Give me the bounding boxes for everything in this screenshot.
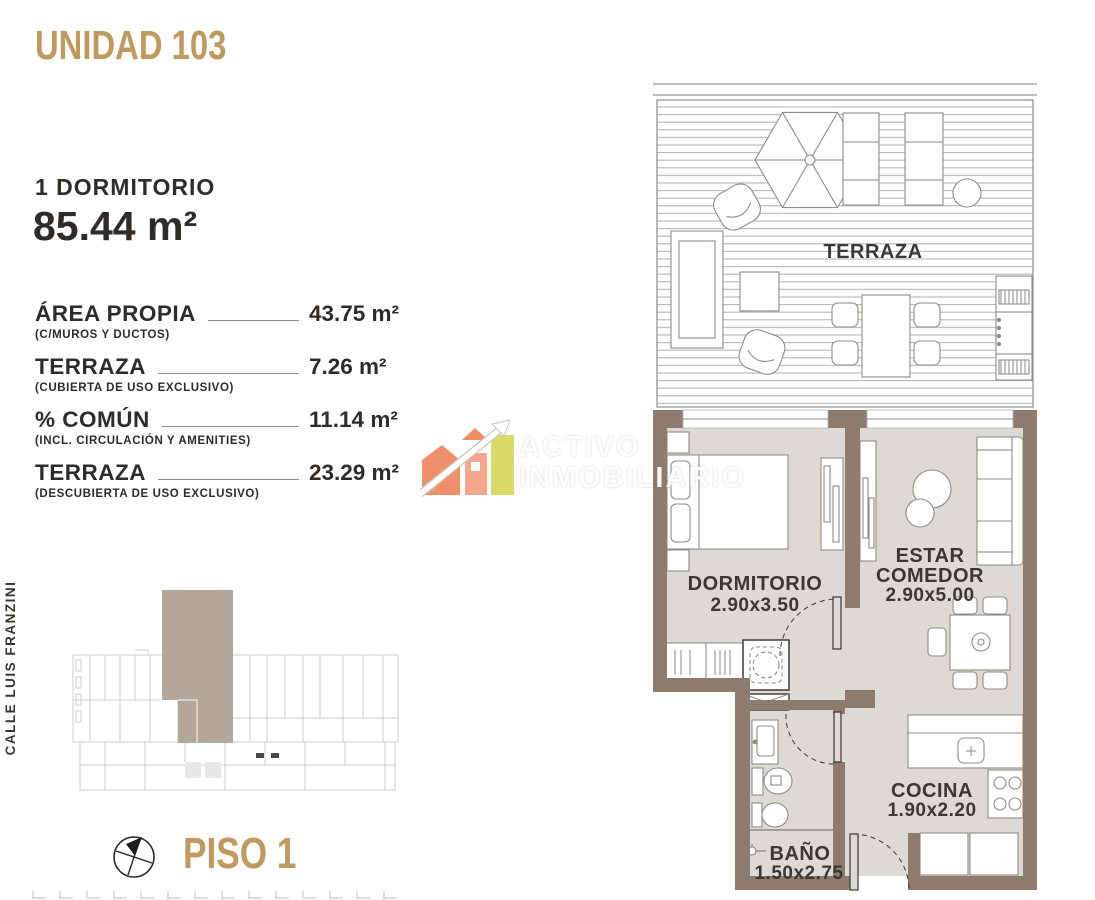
estar-label-2: COMEDOR: [876, 565, 984, 587]
floorplan-drawing: TERRAZA: [640, 75, 1095, 900]
coffee-table-icon: [906, 499, 934, 527]
area-label: TERRAZA: [35, 354, 146, 380]
floor-label: PISO 1: [183, 829, 325, 879]
map-mark: [256, 753, 264, 758]
floorplan-sheet: UNIDAD 103 1 DORMITORIO 85.44 m² ÁREA PR…: [0, 0, 1095, 900]
estar-dims: 2.90x5.00: [885, 585, 974, 606]
area-sublabel: (CUBIERTA DE USO EXCLUSIVO): [35, 382, 427, 394]
page-title: UNIDAD 103: [35, 22, 274, 69]
map-core-block: [205, 762, 221, 778]
terraza-deck: TERRAZA: [653, 84, 1037, 407]
leader-line: [158, 373, 299, 374]
bathroom-sink-icon: [752, 720, 778, 764]
area-value: 23.29 m²: [309, 460, 427, 486]
tv-unit-icon: [860, 441, 876, 561]
leader-line: [158, 479, 299, 480]
kitchen-counter-icon: [908, 715, 1023, 768]
area-value: 43.75 m²: [309, 301, 427, 327]
leader-line: [208, 320, 299, 321]
wardrobe-icon: [821, 458, 843, 550]
side-table-icon: [953, 179, 981, 207]
estar-label-1: ESTAR: [896, 545, 965, 567]
area-label: % COMÚN: [35, 407, 150, 433]
area-label: TERRAZA: [35, 460, 146, 486]
agency-logo-icon: [420, 418, 515, 503]
cooktop-icon: [988, 770, 1023, 818]
area-value: 7.26 m²: [309, 354, 427, 380]
cocina-dims: 1.90x2.20: [887, 800, 976, 821]
area-row: % COMÚN 11.14 m² (INCL. CIRCULACIÓN Y AM…: [35, 407, 427, 447]
bedrooms-label: 1 DORMITORIO: [35, 174, 215, 201]
area-row: TERRAZA 7.26 m² (CUBIERTA DE USO EXCLUSI…: [35, 354, 427, 394]
dormitorio-dims: 2.90x3.50: [710, 595, 799, 616]
terraza-label: TERRAZA: [823, 241, 922, 263]
area-breakdown-list: ÁREA PROPIA 43.75 m² (C/MUROS Y DUCTOS) …: [35, 301, 427, 513]
area-value: 11.14 m²: [309, 407, 427, 433]
grill-icon: [996, 276, 1032, 380]
map-core-block: [185, 762, 201, 778]
area-sublabel: (DESCUBIERTA DE USO EXCLUSIVO): [35, 488, 427, 500]
compass-icon: [114, 837, 154, 877]
total-area-value: 85.44 m²: [33, 203, 197, 250]
bano-dims: 1.50x2.75: [754, 863, 843, 884]
dormitorio-label: DORMITORIO: [688, 573, 823, 595]
bidet-icon: [752, 803, 788, 827]
cocina-label: COCINA: [891, 780, 973, 802]
bano-label: BAÑO: [770, 842, 831, 865]
area-row: ÁREA PROPIA 43.75 m² (C/MUROS Y DUCTOS): [35, 301, 427, 341]
planter-icon: [671, 231, 723, 348]
leader-line: [162, 426, 299, 427]
sofa-icon: [977, 437, 1023, 565]
toilet-icon: [752, 768, 792, 795]
area-sublabel: (C/MUROS Y DUCTOS): [35, 329, 427, 341]
small-table-icon: [740, 272, 779, 311]
building-footprint-outline: [73, 650, 398, 790]
scale-ticks: [33, 891, 397, 899]
dresser-icon: [665, 643, 747, 681]
street-label: CALLE LUIS FRANZINI: [3, 581, 18, 756]
area-row: TERRAZA 23.29 m² (DESCUBIERTA DE USO EXC…: [35, 460, 427, 500]
area-sublabel: (INCL. CIRCULACIÓN Y AMENITIES): [35, 435, 427, 447]
area-label: ÁREA PROPIA: [35, 301, 196, 327]
map-mark: [271, 753, 279, 758]
